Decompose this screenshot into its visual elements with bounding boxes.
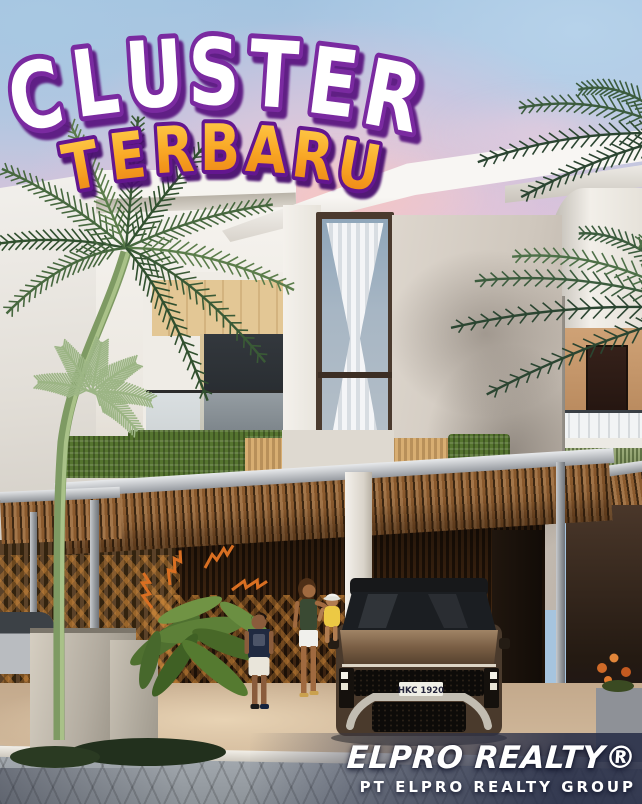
title-artwork: CLUSTER TERBARU [0,4,642,244]
child [317,594,341,643]
svg-text:R: R [151,112,196,189]
poster-canvas: HKC 1920 [0,0,642,804]
branding-block: ELPRO REALTY® PT ELPRO REALTY GROUP [347,740,636,796]
brand-name: ELPRO REALTY® [345,740,637,776]
brand-group-name: PT ELPRO REALTY GROUP [347,778,636,796]
people [245,578,341,709]
left-palm-trunk [59,252,128,740]
svg-text:T: T [57,127,105,207]
svg-text:B: B [200,111,240,185]
bottom-bushes [10,738,226,768]
svg-text:A: A [244,112,289,189]
pavement-shadow-streak [0,768,260,804]
svg-text:R: R [288,117,337,196]
woman-with-child [293,578,341,697]
